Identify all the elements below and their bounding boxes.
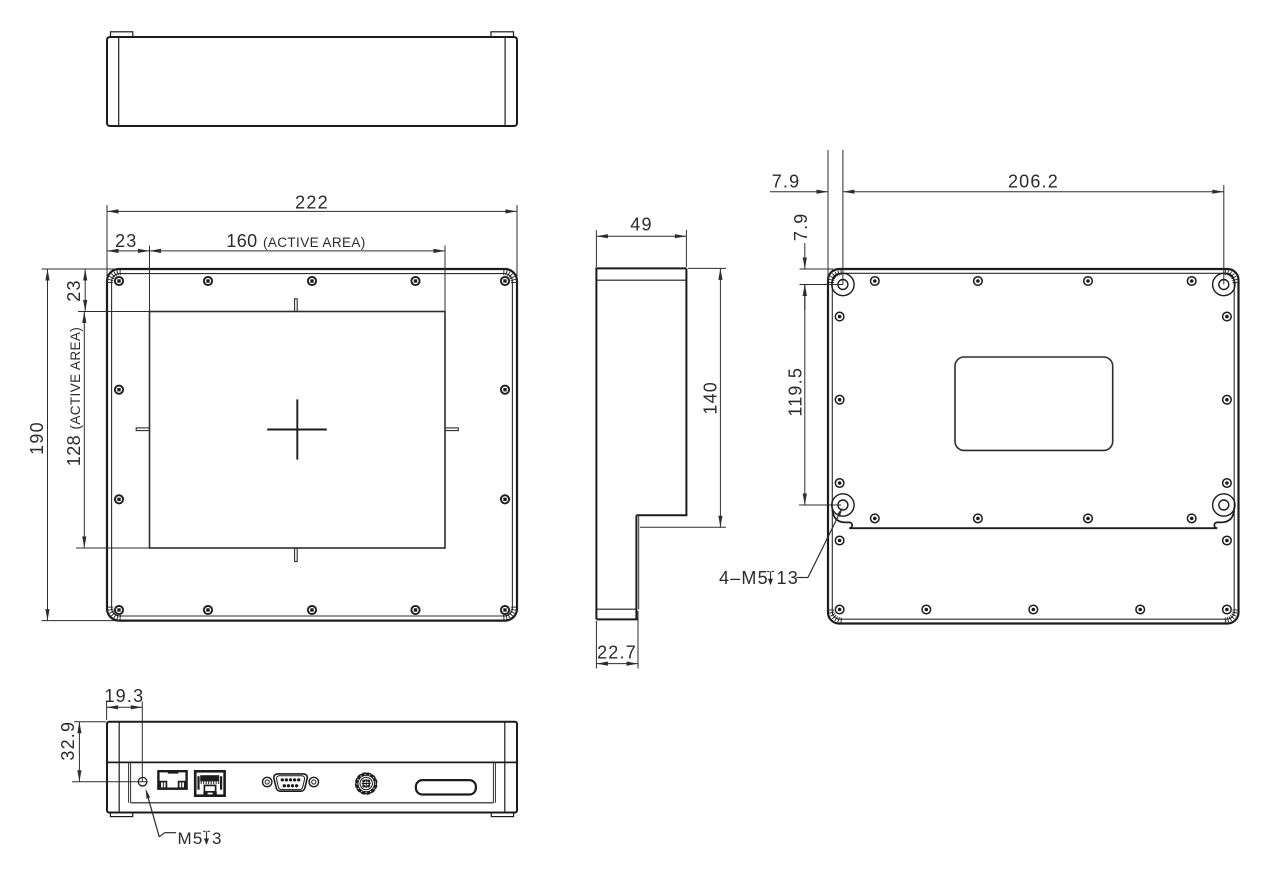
- svg-text:23: 23: [115, 231, 137, 251]
- svg-text:49: 49: [630, 214, 652, 234]
- svg-text:190: 190: [27, 421, 47, 455]
- svg-text:222: 222: [295, 193, 329, 213]
- svg-text:23: 23: [64, 279, 84, 301]
- svg-text:4–M5: 4–M5: [719, 568, 769, 588]
- svg-text:140: 140: [701, 381, 721, 415]
- svg-text:7.9: 7.9: [772, 171, 801, 191]
- svg-text:119.5: 119.5: [786, 367, 806, 417]
- svg-text:206.2: 206.2: [1008, 171, 1059, 191]
- svg-text:160 (ACTIVE AREA): 160 (ACTIVE AREA): [226, 231, 365, 251]
- svg-text:128 (ACTIVE AREA): 128 (ACTIVE AREA): [64, 327, 84, 466]
- svg-text:22.7: 22.7: [597, 642, 637, 662]
- svg-text:32.9: 32.9: [58, 721, 78, 761]
- svg-text:M5: M5: [178, 829, 204, 848]
- svg-text:13: 13: [777, 568, 799, 588]
- svg-text:19.3: 19.3: [104, 686, 144, 706]
- svg-text:7.9: 7.9: [791, 212, 811, 241]
- svg-text:3: 3: [212, 829, 223, 848]
